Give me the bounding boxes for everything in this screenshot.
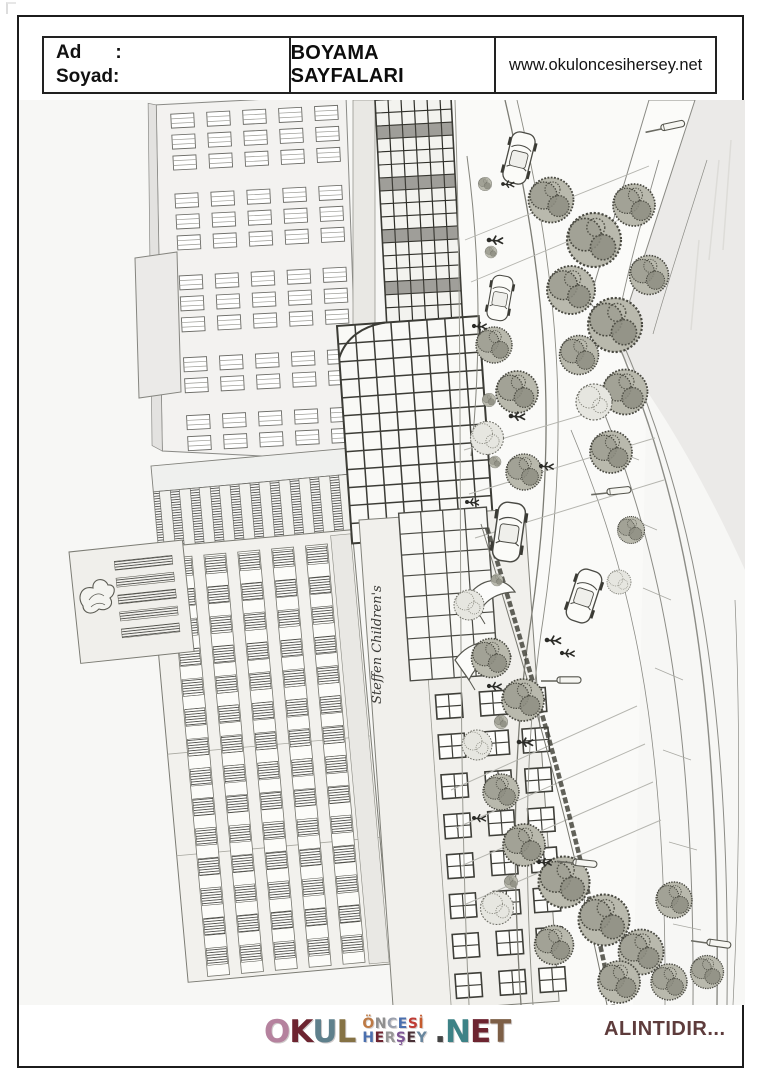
name-colon: : — [115, 42, 121, 64]
surname-row: Soyad: — [56, 66, 119, 88]
logo-word-hersey: HERŞEY — [362, 1031, 427, 1045]
name-label: Ad — [56, 42, 81, 64]
coloring-page: { "header": { "name_label": "Ad", "name_… — [0, 0, 762, 1076]
attribution-text: ALINTIDIR... — [604, 1018, 734, 1041]
logo-word-oncesi: ÖNCESİ — [362, 1017, 427, 1031]
coloring-illustration: Steffen Children's — [19, 100, 745, 1005]
surname-label: Soyad: — [56, 66, 119, 88]
logo-word-net: .NET — [434, 1014, 510, 1050]
logo-word-okul: OKUL — [264, 1014, 355, 1050]
site-logo: OKUL ÖNCESİ HERŞEY .NET — [264, 1006, 510, 1058]
name-surname-cell: Ad : Soyad: — [44, 38, 291, 92]
scan-artifact-mark — [6, 2, 16, 14]
header-table: Ad : Soyad: BOYAMA SAYFALARI www.okulonc… — [42, 36, 717, 94]
illustration-svg: Steffen Children's — [19, 100, 745, 1005]
tower-fin-slab — [135, 252, 181, 398]
website-url: www.okuloncesihersey.net — [496, 38, 715, 92]
building-sign-text: Steffen Children's — [370, 585, 385, 704]
logo-stack: ÖNCESİ HERŞEY — [362, 1017, 427, 1045]
glass-arcade — [375, 100, 463, 324]
name-row: Ad : — [56, 42, 122, 64]
page-title: BOYAMA SAYFALARI — [291, 38, 497, 92]
